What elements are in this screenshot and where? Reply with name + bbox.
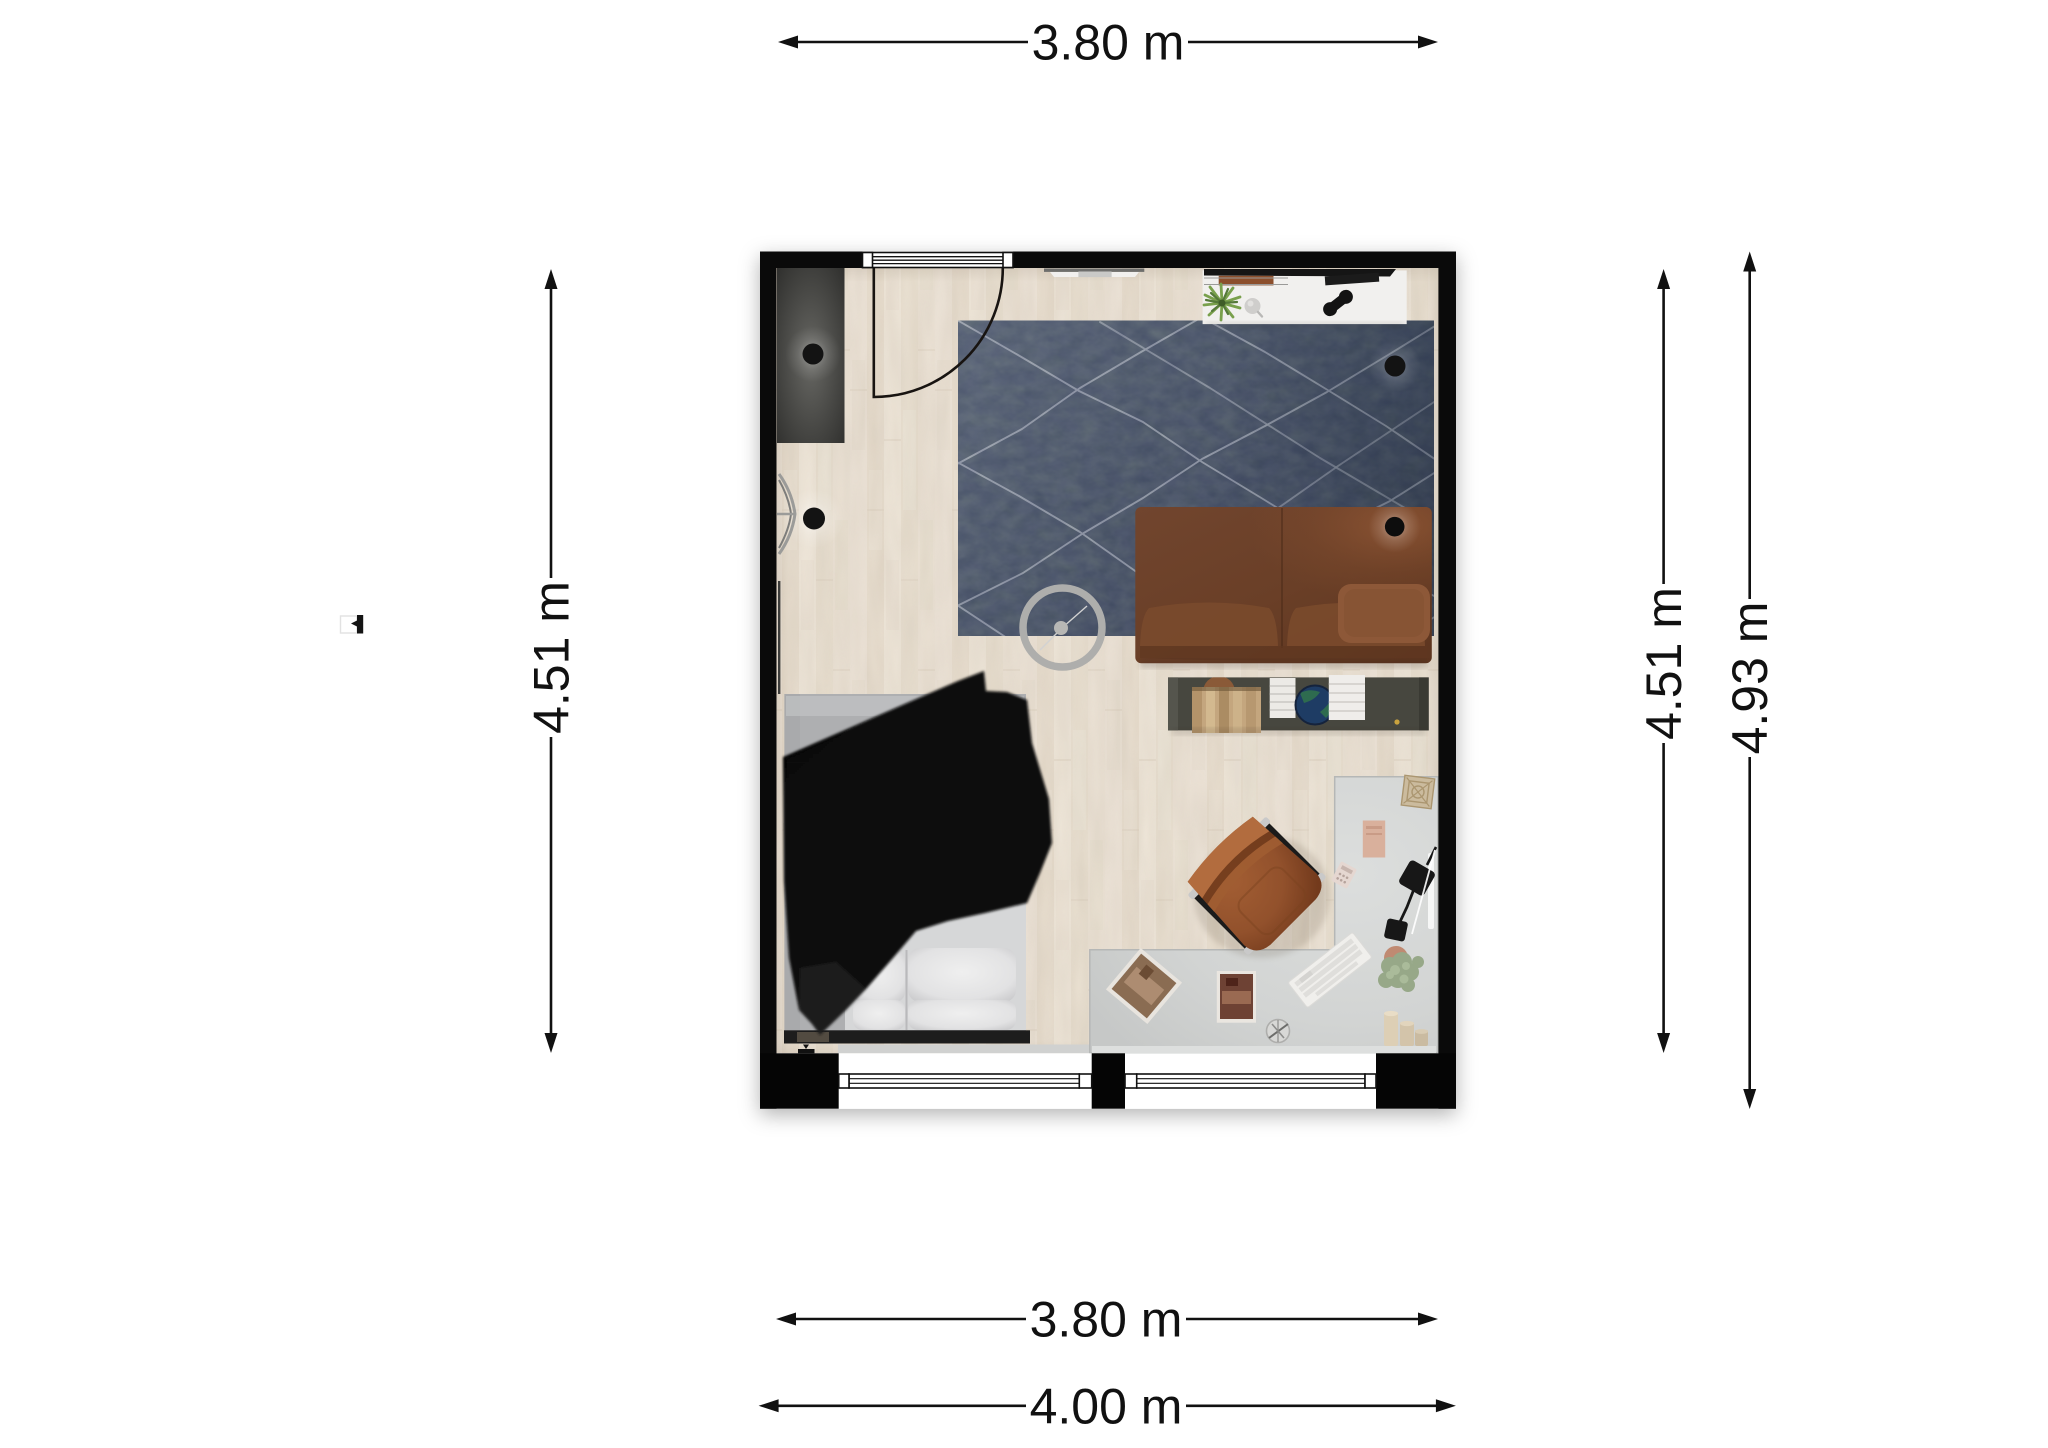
svg-text:4.00 m: 4.00 m bbox=[1030, 1378, 1183, 1434]
svg-text:4.51 m: 4.51 m bbox=[1636, 587, 1692, 740]
svg-text:4.51 m: 4.51 m bbox=[524, 581, 580, 734]
svg-text:4.93 m: 4.93 m bbox=[1722, 602, 1778, 755]
svg-text:3.80 m: 3.80 m bbox=[1030, 1292, 1183, 1348]
svg-text:3.80 m: 3.80 m bbox=[1032, 15, 1185, 71]
